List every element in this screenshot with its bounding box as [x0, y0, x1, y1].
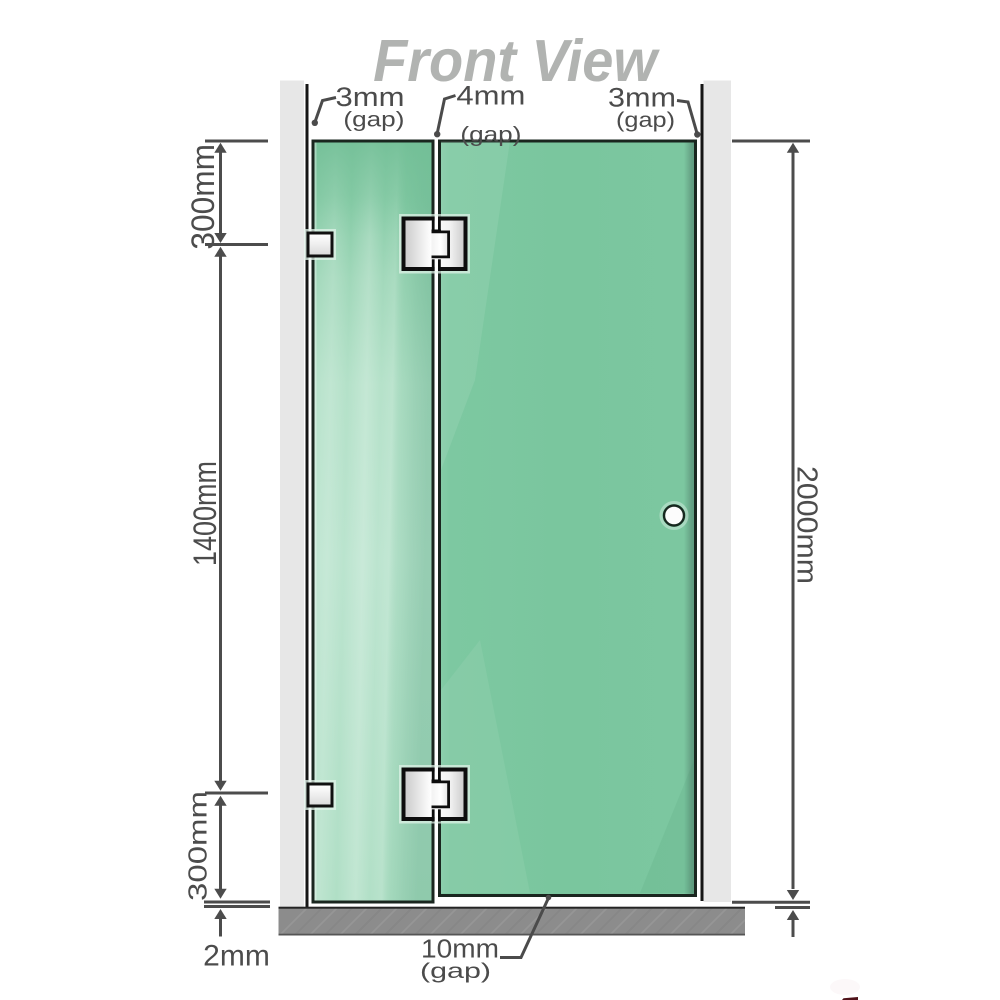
svg-text:2000mm: 2000mm — [791, 466, 823, 584]
svg-text:4mm: 4mm — [456, 81, 525, 111]
svg-text:(gap): (gap) — [616, 108, 675, 131]
svg-text:(gap): (gap) — [420, 959, 491, 983]
svg-text:2mm: 2mm — [203, 940, 270, 973]
svg-text:(gap): (gap) — [460, 124, 521, 147]
svg-text:1400mm: 1400mm — [188, 461, 224, 566]
svg-text:300mm: 300mm — [185, 144, 221, 250]
svg-text:300mm: 300mm — [184, 791, 213, 901]
svg-text:(gap): (gap) — [343, 109, 404, 132]
